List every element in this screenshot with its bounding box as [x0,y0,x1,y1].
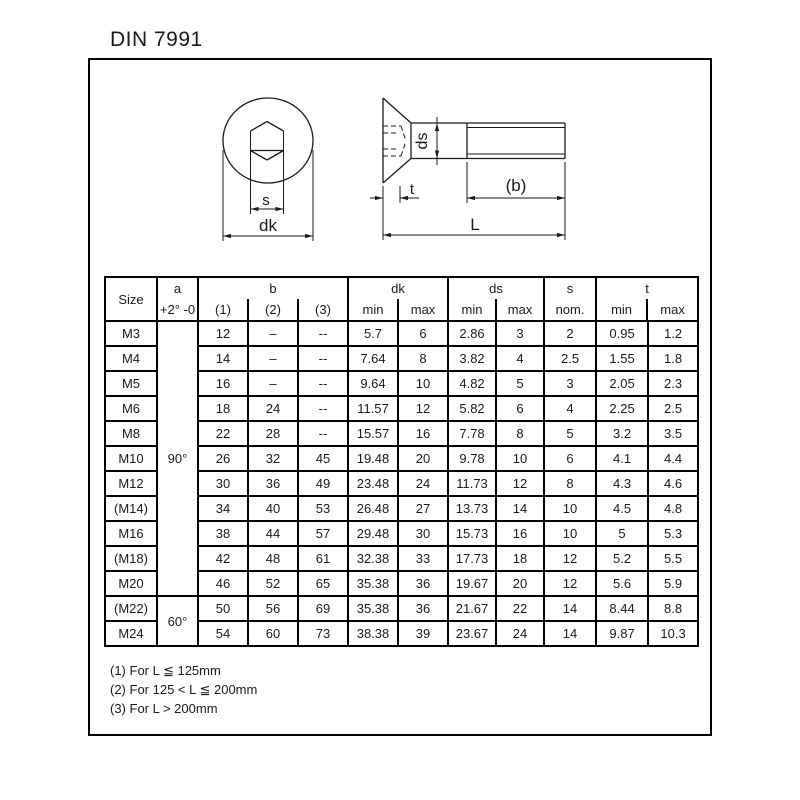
value-cell: 53 [298,496,348,521]
value-cell: 9.87 [596,621,648,646]
value-cell: 12 [198,321,248,346]
value-cell: 12 [496,471,544,496]
value-cell: 0.95 [596,321,648,346]
value-cell: 57 [298,521,348,546]
value-cell: 3 [496,321,544,346]
value-cell: 24 [398,471,448,496]
value-cell: 8.44 [596,596,648,621]
value-cell: 73 [298,621,348,646]
b-extension-lines [467,162,565,240]
value-cell: 52 [248,571,298,596]
value-cell: -- [298,346,348,371]
value-cell: 4.1 [596,446,648,471]
value-cell: 16 [496,521,544,546]
dk-label: dk [259,216,277,235]
value-cell: 6 [398,321,448,346]
value-cell: 3.82 [448,346,496,371]
value-cell: 9.78 [448,446,496,471]
hex-socket-outline [251,122,284,161]
value-cell: 8 [398,346,448,371]
value-cell: 29.48 [348,521,398,546]
value-cell: 48 [248,546,298,571]
value-cell: 9.64 [348,371,398,396]
value-cell: 5 [496,371,544,396]
value-cell: 5 [596,521,648,546]
value-cell: 38.38 [348,621,398,646]
value-cell: 5 [544,421,596,446]
value-cell: 5.82 [448,396,496,421]
size-cell: M6 [105,396,157,421]
value-cell: 5.7 [348,321,398,346]
hidden-socket-lines [383,126,406,156]
value-cell: 28 [248,421,298,446]
value-cell: 5.2 [596,546,648,571]
value-cell: 10 [544,521,596,546]
size-cell: M24 [105,621,157,646]
value-cell: 3 [544,371,596,396]
value-cell: 10.3 [648,621,698,646]
value-cell: 4.6 [648,471,698,496]
screw-outline [383,98,565,183]
value-cell: 36 [398,571,448,596]
head-circle [223,98,313,183]
value-cell: 4 [544,396,596,421]
value-cell: 4.8 [648,496,698,521]
value-cell: 17.73 [448,546,496,571]
value-cell: 21.67 [448,596,496,621]
value-cell: 12 [544,546,596,571]
thread-lines [467,128,565,155]
footnotes: (1) For L ≦ 125mm (2) For 125 < L ≦ 200m… [110,661,257,718]
value-cell: 20 [496,571,544,596]
col-ds: ds min max [448,277,544,321]
value-cell: 23.48 [348,471,398,496]
value-cell: 45 [298,446,348,471]
value-cell: 49 [298,471,348,496]
value-cell: 61 [298,546,348,571]
value-cell: 4.5 [596,496,648,521]
value-cell: 2.3 [648,371,698,396]
table-row: (M22)60°50566935.383621.6722148.448.8 [105,596,698,621]
value-cell: 4.3 [596,471,648,496]
value-cell: 14 [544,621,596,646]
value-cell: 32 [248,446,298,471]
value-cell: 15.73 [448,521,496,546]
side-view-drawing [370,98,565,240]
value-cell: – [248,321,298,346]
value-cell: 19.48 [348,446,398,471]
table-row: M390°12–--5.762.86320.951.2 [105,321,698,346]
angle-cell-60: 60° [157,596,198,646]
value-cell: 8 [496,421,544,446]
value-cell: 6 [544,446,596,471]
value-cell: 18 [198,396,248,421]
col-s: s nom. [544,277,596,321]
t-extension-lines [383,186,400,240]
value-cell: 24 [496,621,544,646]
value-cell: 20 [398,446,448,471]
value-cell: 8 [544,471,596,496]
angle-cell-90: 90° [157,321,198,596]
col-dk: dk min max [348,277,448,321]
value-cell: 2.25 [596,396,648,421]
value-cell: 50 [198,596,248,621]
value-cell: 69 [298,596,348,621]
value-cell: 11.73 [448,471,496,496]
value-cell: 16 [198,371,248,396]
value-cell: 42 [198,546,248,571]
value-cell: 14 [496,496,544,521]
value-cell: 33 [398,546,448,571]
size-cell: M16 [105,521,157,546]
value-cell: 13.73 [448,496,496,521]
size-cell: M5 [105,371,157,396]
value-cell: 5.3 [648,521,698,546]
value-cell: 30 [398,521,448,546]
value-cell: 10 [544,496,596,521]
value-cell: 7.64 [348,346,398,371]
value-cell: 1.2 [648,321,698,346]
value-cell: 11.57 [348,396,398,421]
value-cell: 27 [398,496,448,521]
value-cell: 12 [544,571,596,596]
value-cell: 22 [496,596,544,621]
value-cell: 5.6 [596,571,648,596]
value-cell: – [248,346,298,371]
value-cell: 3.5 [648,421,698,446]
value-cell: 34 [198,496,248,521]
value-cell: 32.38 [348,546,398,571]
size-cell: (M14) [105,496,157,521]
size-cell: (M22) [105,596,157,621]
value-cell: 39 [398,621,448,646]
value-cell: 56 [248,596,298,621]
col-size: Size [105,277,157,321]
table-body: M390°12–--5.762.86320.951.2M414–--7.6483… [105,321,698,646]
value-cell: 3.2 [596,421,648,446]
value-cell: 26.48 [348,496,398,521]
col-t: t min max [596,277,698,321]
value-cell: 1.8 [648,346,698,371]
size-cell: M20 [105,571,157,596]
value-cell: 2.5 [648,396,698,421]
value-cell: -- [298,371,348,396]
value-cell: 16 [398,421,448,446]
value-cell: 26 [198,446,248,471]
col-a: a +2° -0 [157,277,198,321]
value-cell: 5.9 [648,571,698,596]
value-cell: 8.8 [648,596,698,621]
value-cell: 2.5 [544,346,596,371]
footnote-2: (2) For 125 < L ≦ 200mm [110,680,257,699]
l-label: L [470,215,479,234]
value-cell: 10 [398,371,448,396]
col-b: b (1) (2) (3) [198,277,348,321]
value-cell: 60 [248,621,298,646]
size-cell: M4 [105,346,157,371]
value-cell: -- [298,421,348,446]
value-cell: 4.4 [648,446,698,471]
value-cell: 35.38 [348,571,398,596]
value-cell: 30 [198,471,248,496]
value-cell: 2.05 [596,371,648,396]
footnote-1: (1) For L ≦ 125mm [110,661,257,680]
value-cell: -- [298,321,348,346]
value-cell: 18 [496,546,544,571]
value-cell: 65 [298,571,348,596]
ds-label: ds [414,133,431,150]
value-cell: 10 [496,446,544,471]
value-cell: 5.5 [648,546,698,571]
size-cell: (M18) [105,546,157,571]
spec-table: Size a +2° -0 b (1) (2) (3) dk [104,276,699,647]
size-cell: M3 [105,321,157,346]
value-cell: 54 [198,621,248,646]
size-cell: M12 [105,471,157,496]
value-cell: 2.86 [448,321,496,346]
value-cell: – [248,371,298,396]
size-cell: M10 [105,446,157,471]
value-cell: 36 [398,596,448,621]
value-cell: 4 [496,346,544,371]
value-cell: 14 [198,346,248,371]
value-cell: 14 [544,596,596,621]
value-cell: 2 [544,321,596,346]
value-cell: 35.38 [348,596,398,621]
s-label: s [262,192,270,209]
value-cell: 24 [248,396,298,421]
size-cell: M8 [105,421,157,446]
footnote-3: (3) For L > 200mm [110,699,257,718]
value-cell: 22 [198,421,248,446]
value-cell: 40 [248,496,298,521]
value-cell: 1.55 [596,346,648,371]
value-cell: 38 [198,521,248,546]
t-label: t [410,181,415,198]
value-cell: 46 [198,571,248,596]
page: DIN 7991 s dk [0,0,800,800]
value-cell: -- [298,396,348,421]
b-label: (b) [506,176,527,195]
value-cell: 4.82 [448,371,496,396]
technical-drawings: s dk [0,0,800,262]
value-cell: 23.67 [448,621,496,646]
value-cell: 6 [496,396,544,421]
value-cell: 19.67 [448,571,496,596]
value-cell: 44 [248,521,298,546]
value-cell: 36 [248,471,298,496]
value-cell: 15.57 [348,421,398,446]
value-cell: 7.78 [448,421,496,446]
value-cell: 12 [398,396,448,421]
header-row: Size a +2° -0 b (1) (2) (3) dk [105,277,698,321]
